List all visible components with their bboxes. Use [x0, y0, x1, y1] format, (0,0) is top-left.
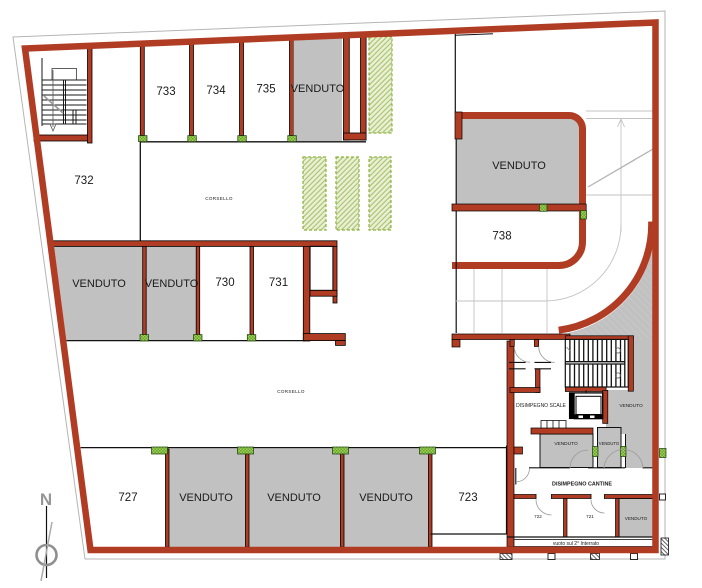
svg-text:CORSELLO: CORSELLO	[277, 389, 305, 394]
svg-text:732: 732	[74, 175, 93, 187]
svg-text:CORSELLO: CORSELLO	[205, 196, 233, 201]
svg-text:VENDUTO: VENDUTO	[554, 441, 578, 447]
svg-text:VENDUTO: VENDUTO	[291, 83, 345, 95]
svg-text:VENDUTO: VENDUTO	[179, 492, 233, 504]
svg-text:vuoto sul 2° Interrato: vuoto sul 2° Interrato	[553, 541, 599, 547]
svg-text:VENDUTO: VENDUTO	[145, 278, 199, 290]
svg-text:VENDUTO: VENDUTO	[625, 516, 648, 521]
svg-text:735: 735	[256, 84, 275, 96]
svg-text:733: 733	[156, 86, 175, 98]
svg-text:734: 734	[206, 85, 226, 97]
svg-text:VENDUTO: VENDUTO	[599, 441, 620, 446]
svg-text:723: 723	[458, 492, 477, 504]
svg-text:VENDUTO: VENDUTO	[72, 278, 126, 290]
svg-text:730: 730	[215, 277, 234, 289]
svg-text:721: 721	[586, 514, 594, 519]
svg-text:DISIMPEGNO SCALE: DISIMPEGNO SCALE	[516, 403, 566, 409]
svg-text:DISIMPEGNO CANTINE: DISIMPEGNO CANTINE	[552, 482, 612, 488]
svg-text:VENDUTO: VENDUTO	[359, 492, 413, 504]
svg-text:738: 738	[492, 231, 511, 243]
svg-text:731: 731	[269, 277, 288, 289]
svg-text:VENDUTO: VENDUTO	[267, 492, 321, 504]
svg-text:727: 727	[118, 492, 137, 504]
svg-text:VENDUTO: VENDUTO	[492, 160, 546, 172]
svg-text:722: 722	[534, 514, 542, 519]
svg-text:VENDUTO: VENDUTO	[619, 403, 643, 409]
